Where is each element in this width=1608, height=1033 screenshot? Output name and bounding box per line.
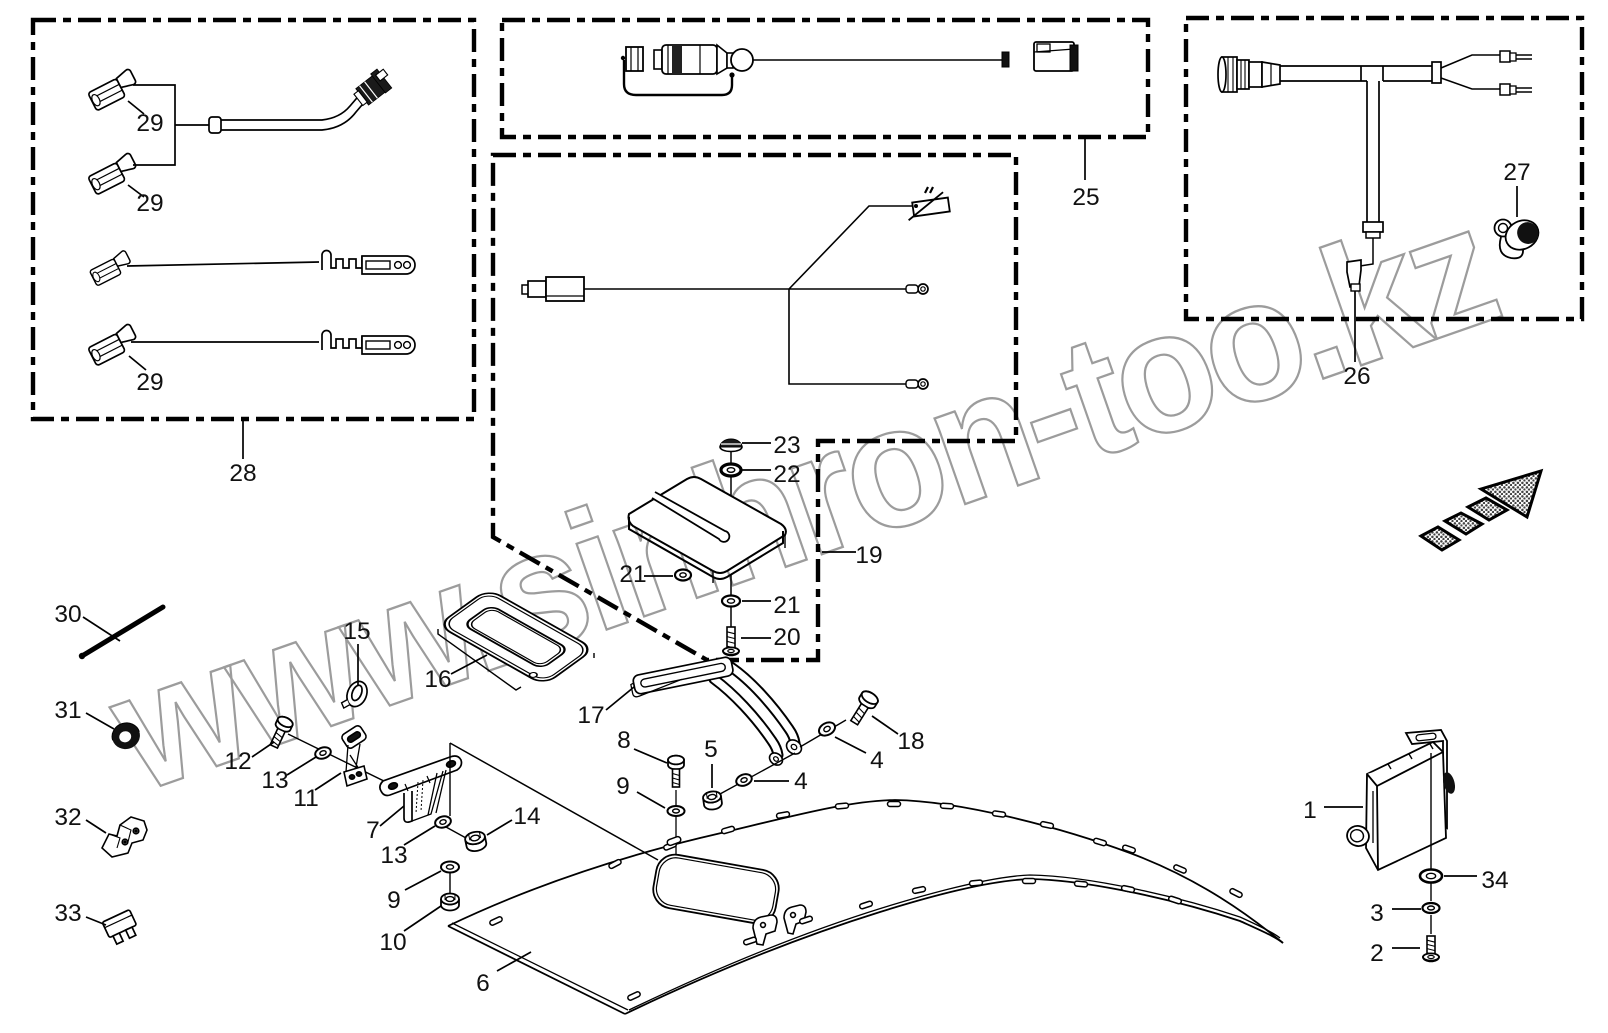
svg-text:29: 29 (136, 369, 163, 396)
svg-text:13: 13 (380, 842, 407, 869)
svg-text:1: 1 (1303, 797, 1317, 824)
svg-text:29: 29 (136, 110, 163, 137)
svg-text:9: 9 (387, 887, 401, 914)
svg-text:20: 20 (773, 624, 800, 651)
svg-text:23: 23 (773, 432, 800, 459)
svg-text:6: 6 (476, 970, 490, 997)
svg-text:27: 27 (1503, 159, 1530, 186)
svg-text:11: 11 (293, 785, 318, 812)
svg-text:8: 8 (617, 727, 631, 754)
svg-text:7: 7 (366, 817, 380, 844)
svg-text:19: 19 (855, 542, 882, 569)
svg-text:30: 30 (54, 601, 81, 628)
svg-text:31: 31 (54, 697, 81, 724)
svg-text:2: 2 (1370, 940, 1384, 967)
svg-text:9: 9 (616, 773, 630, 800)
svg-text:21: 21 (773, 592, 800, 619)
svg-text:15: 15 (343, 618, 370, 645)
svg-text:22: 22 (773, 461, 800, 488)
svg-text:3: 3 (1370, 900, 1384, 927)
svg-text:32: 32 (54, 804, 81, 831)
svg-text:17: 17 (577, 702, 604, 729)
svg-text:33: 33 (54, 900, 81, 927)
svg-text:16: 16 (424, 666, 451, 693)
svg-text:5: 5 (704, 736, 718, 763)
svg-text:18: 18 (897, 728, 924, 755)
svg-text:21: 21 (619, 561, 646, 588)
svg-text:4: 4 (870, 747, 884, 774)
svg-text:10: 10 (379, 929, 406, 956)
svg-text:13: 13 (261, 767, 288, 794)
svg-text:12: 12 (224, 748, 251, 775)
svg-text:29: 29 (136, 190, 163, 217)
svg-text:25: 25 (1072, 184, 1099, 211)
svg-text:34: 34 (1481, 867, 1508, 894)
svg-text:26: 26 (1343, 363, 1370, 390)
svg-text:14: 14 (513, 803, 540, 830)
svg-text:28: 28 (229, 460, 256, 487)
svg-text:4: 4 (794, 768, 808, 795)
